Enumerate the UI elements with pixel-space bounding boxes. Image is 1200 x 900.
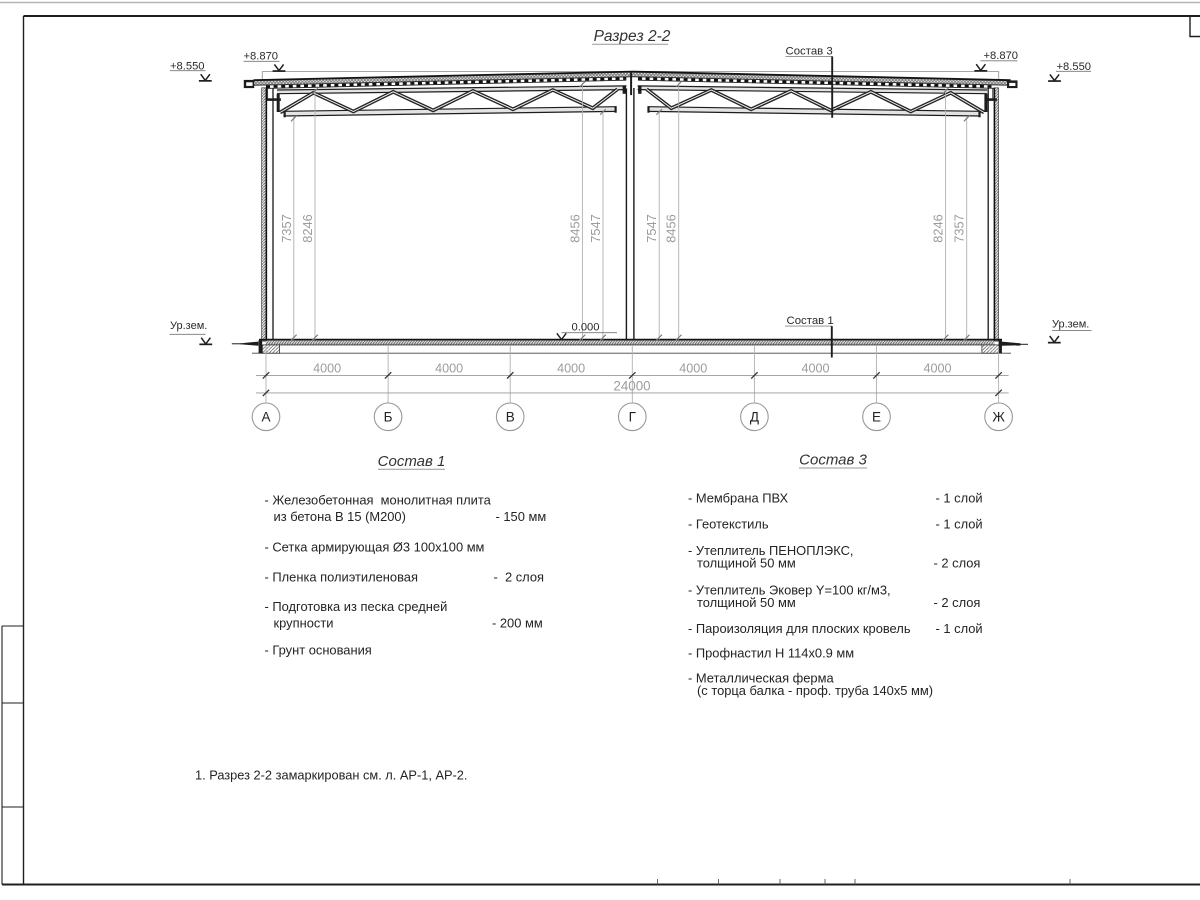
svg-text:Состав 3: Состав 3 <box>786 45 833 57</box>
svg-text:- Железобетонная монолитная п: - Железобетонная монолитная плита <box>265 493 492 508</box>
svg-text:4000: 4000 <box>435 362 463 376</box>
svg-text:- Мембрана ПВХ: - Мембрана ПВХ <box>688 491 789 506</box>
svg-text:- 2 слоя: - 2 слоя <box>494 570 544 585</box>
svg-text:4000: 4000 <box>923 362 951 376</box>
svg-text:7547: 7547 <box>588 214 603 242</box>
svg-text:Е: Е <box>872 410 881 425</box>
svg-text:Г: Г <box>629 410 637 425</box>
svg-text:Состав 3: Состав 3 <box>799 452 867 469</box>
svg-text:(с торца балка - проф. труба 1: (с торца балка - проф. труба 140x5 мм) <box>697 683 933 698</box>
svg-text:- 1 слой: - 1 слой <box>936 516 983 531</box>
svg-text:Ур.зем.: Ур.зем. <box>170 320 207 332</box>
svg-text:Ж: Ж <box>992 410 1005 425</box>
svg-text:- 150 мм: - 150 мм <box>496 509 547 524</box>
svg-text:Ур.зем.: Ур.зем. <box>1052 318 1089 330</box>
svg-text:Разрез 2-2: Разрез 2-2 <box>594 28 671 45</box>
svg-text:- 1 слой: - 1 слой <box>936 491 983 506</box>
svg-text:4000: 4000 <box>679 362 707 376</box>
svg-text:крупности: крупности <box>274 616 334 631</box>
svg-text:8246: 8246 <box>300 214 315 242</box>
svg-text:- Геотекстиль: - Геотекстиль <box>688 516 769 531</box>
svg-text:8456: 8456 <box>567 214 582 242</box>
svg-text:Состав 1: Состав 1 <box>378 453 446 470</box>
svg-text:4000: 4000 <box>557 362 585 376</box>
svg-text:- Грунт основания: - Грунт основания <box>265 643 372 658</box>
svg-text:В: В <box>506 410 515 425</box>
svg-text:7357: 7357 <box>279 214 294 242</box>
svg-text:24000: 24000 <box>613 379 650 394</box>
svg-text:Состав 1: Состав 1 <box>787 315 834 327</box>
svg-text:Б: Б <box>384 410 393 425</box>
svg-text:0.000: 0.000 <box>572 321 600 333</box>
svg-text:толщиной 50 мм: толщиной 50 мм <box>697 556 796 571</box>
svg-text:+8.870: +8.870 <box>244 50 279 62</box>
svg-text:+8.870: +8.870 <box>984 50 1019 62</box>
svg-text:- Пленка полиэтиленовая: - Пленка полиэтиленовая <box>265 570 418 585</box>
svg-text:А: А <box>261 410 270 425</box>
svg-text:толщиной 50 мм: толщиной 50 мм <box>697 595 796 610</box>
svg-text:- 1 слой: - 1 слой <box>936 621 983 636</box>
svg-text:- 2 слоя: - 2 слоя <box>934 595 981 610</box>
svg-text:Д: Д <box>750 410 759 425</box>
svg-text:- Профнастил Н 114x0.9 мм: - Профнастил Н 114x0.9 мм <box>688 645 854 660</box>
svg-text:4000: 4000 <box>313 362 341 376</box>
svg-text:4000: 4000 <box>801 362 829 376</box>
svg-text:- Сетка армирующая Ø3 100x100: - Сетка армирующая Ø3 100x100 мм <box>265 540 485 555</box>
svg-text:- 2 слоя: - 2 слоя <box>934 556 981 571</box>
svg-text:8456: 8456 <box>664 214 679 242</box>
svg-text:7357: 7357 <box>952 214 967 242</box>
svg-text:- 200 мм: - 200 мм <box>492 616 543 631</box>
svg-text:8246: 8246 <box>931 214 946 242</box>
svg-text:- Подготовка из песка средней: - Подготовка из песка средней <box>265 599 448 614</box>
svg-text:1. Разрез 2-2 замаркирован см.: 1. Разрез 2-2 замаркирован см. л. АР-1, … <box>195 768 467 783</box>
svg-text:7547: 7547 <box>644 214 659 242</box>
svg-text:- Пароизоляция для плоских кро: - Пароизоляция для плоских кровель <box>688 621 911 636</box>
svg-text:из бетона В 15 (М200): из бетона В 15 (М200) <box>274 509 406 524</box>
